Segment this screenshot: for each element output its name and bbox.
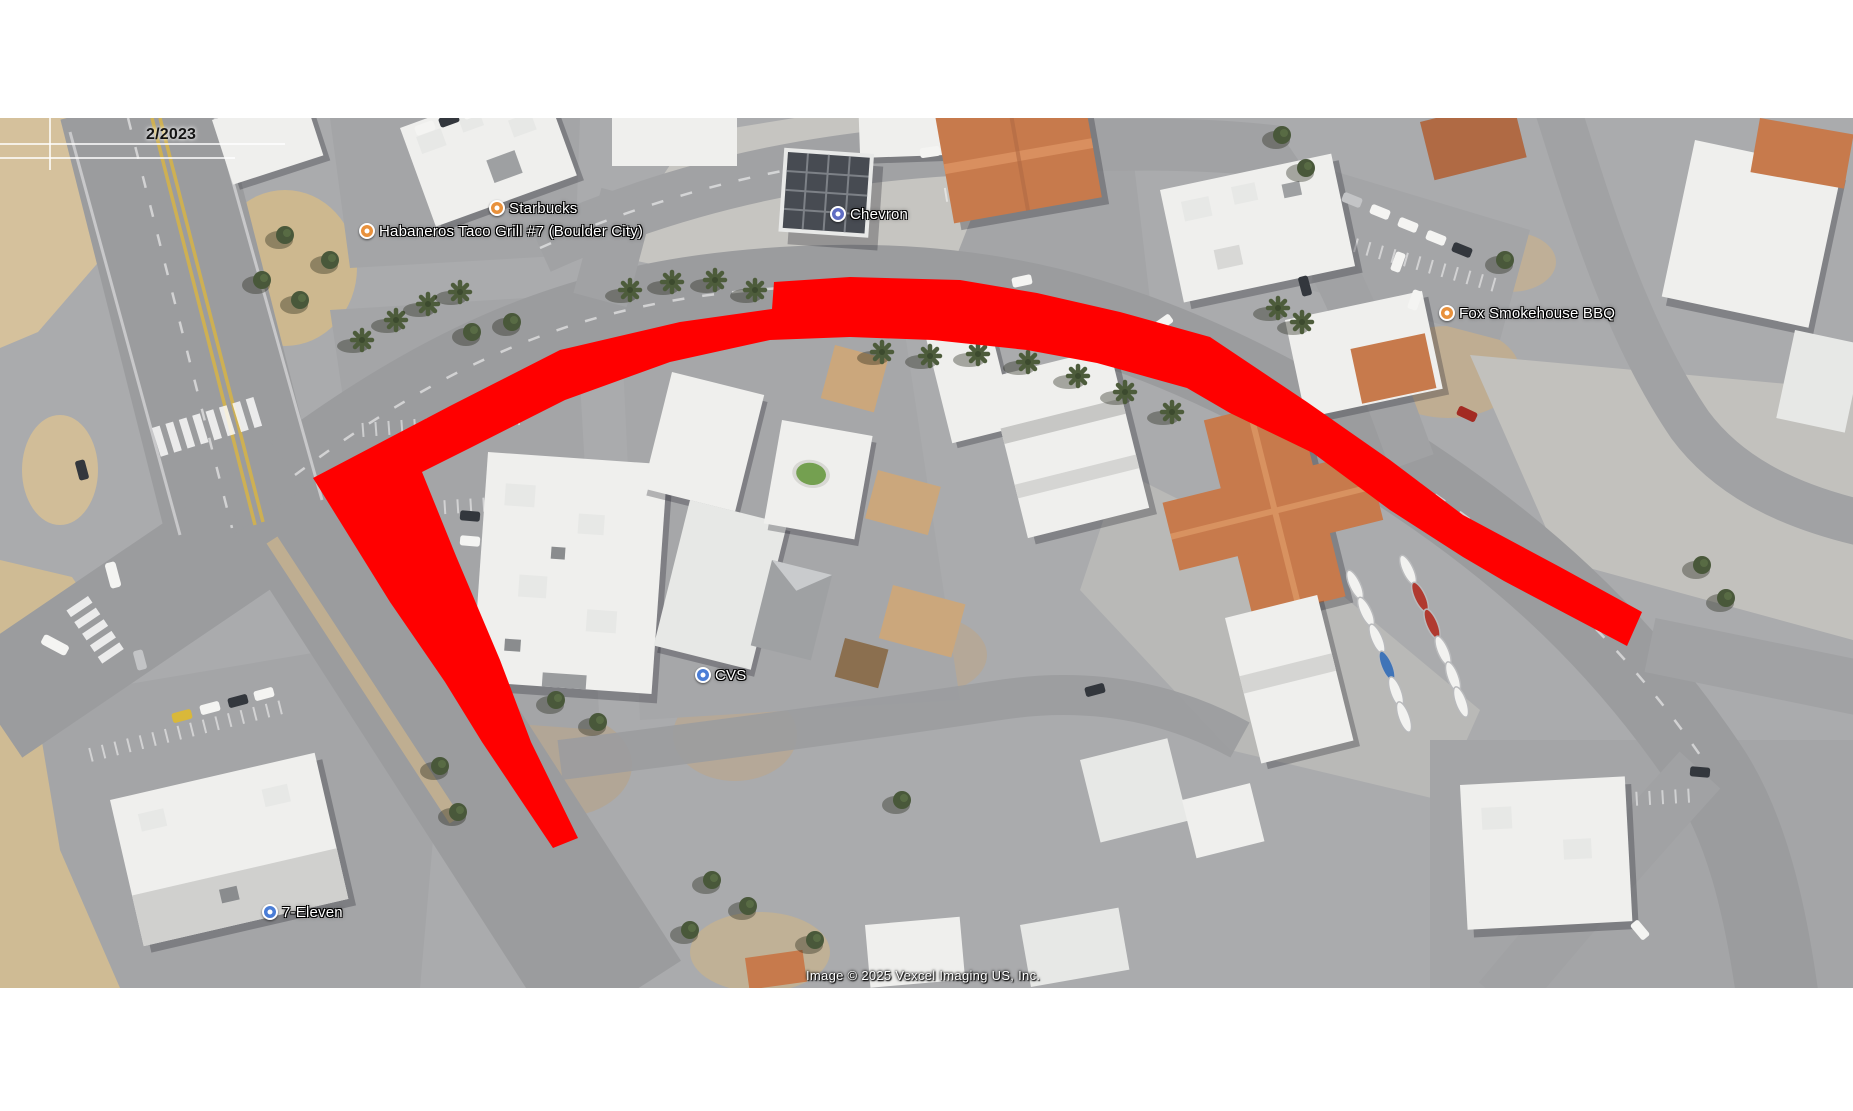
satellite-map[interactable]: 2/2023 StarbucksHabaneros Taco Grill #7 … [0,118,1853,988]
poi-cvs[interactable]: CVS [695,667,746,683]
imagery-date-label: 2/2023 [146,126,196,144]
poi-seven-eleven[interactable]: 7-Eleven [262,904,343,920]
poi-name: Fox Smokehouse BBQ [1459,305,1615,322]
route-highlight [313,277,1642,848]
cafe-icon [489,200,505,216]
poi-fox-smokehouse-bbq[interactable]: Fox Smokehouse BBQ [1439,305,1615,321]
poi-chevron[interactable]: Chevron [830,206,908,222]
poi-name: Chevron [850,206,908,223]
timeline-line [0,157,235,159]
pharmacy-icon [695,667,711,683]
restaurant-icon [1439,305,1455,321]
poi-name: 7-Eleven [282,904,343,921]
timeline-line [0,143,285,145]
poi-habaneros-taco-grill[interactable]: Habaneros Taco Grill #7 (Boulder City) [359,223,643,239]
restaurant-icon [359,223,375,239]
poi-name: Habaneros Taco Grill #7 (Boulder City) [379,223,643,240]
top-letterbox [0,0,1853,118]
bottom-letterbox [0,988,1853,1111]
route-highlight-overlay [0,118,1853,988]
poi-name: Starbucks [509,200,578,217]
attribution-text: Image © 2025 Vexcel Imaging US, Inc. [806,968,1040,983]
gas-station-icon [830,206,846,222]
convenience-store-icon [262,904,278,920]
poi-starbucks[interactable]: Starbucks [489,200,578,216]
poi-name: CVS [715,667,746,684]
google-earth-screenshot: 2/2023 StarbucksHabaneros Taco Grill #7 … [0,0,1853,1111]
